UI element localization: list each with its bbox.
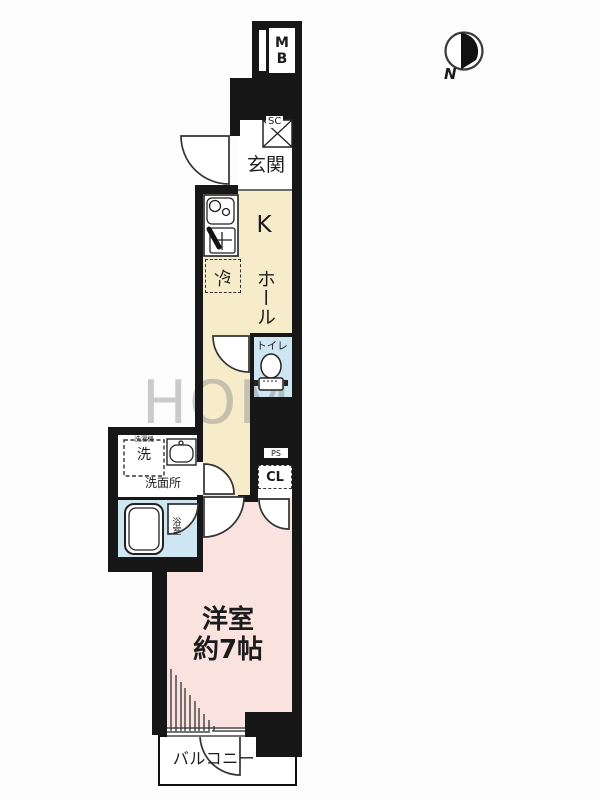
- toilet-icon: [254, 354, 288, 390]
- main-room-door-arc: [204, 497, 244, 537]
- north-arrow-icon: [446, 33, 483, 70]
- main-room-size: 約7帖: [164, 636, 292, 666]
- washing-machine-small-label: 洗濯機: [124, 436, 164, 443]
- plan-symbols: [0, 0, 600, 800]
- north-label: N: [444, 66, 457, 83]
- washroom-door-arc: [204, 464, 234, 494]
- balcony-label: バルコニー: [163, 750, 265, 768]
- main-room-name: 洋室: [164, 606, 292, 636]
- floor-plan: HOM MB PS CL: [0, 0, 600, 800]
- hatch-lines: [171, 669, 214, 731]
- refrigerator-box: 冷: [205, 259, 241, 293]
- kitchen-label: K: [248, 212, 280, 238]
- washbasin-icon: [167, 439, 196, 465]
- entrance-door-arc: [181, 136, 229, 184]
- main-room-label: 洋室 約7帖: [164, 606, 292, 666]
- shoe-closet-label: SC: [266, 116, 283, 128]
- kitchen-sink-stove-icon: [204, 195, 238, 256]
- bathroom-label: 浴室: [170, 510, 180, 542]
- washroom-label: 洗面所: [131, 477, 195, 491]
- refrigerator-label: 冷: [211, 261, 236, 290]
- bathtub-icon: [125, 504, 163, 554]
- washing-machine-label: 洗: [124, 447, 164, 463]
- entrance-label: 玄関: [238, 155, 294, 177]
- toilet-door-arc: [213, 336, 249, 372]
- toilet-label: トイレ: [252, 340, 292, 352]
- closet-door-arc: [259, 499, 289, 529]
- balcony-sliding-door: [167, 727, 245, 737]
- hall-label: ホール: [253, 253, 275, 341]
